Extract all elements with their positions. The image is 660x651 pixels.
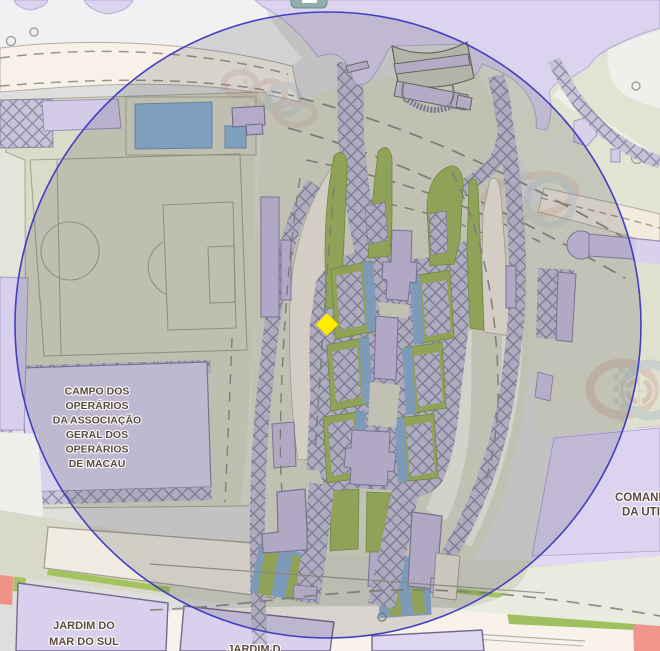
svg-text:JARDIM DO: JARDIM DO [53, 620, 115, 632]
svg-text:DE MACAU: DE MACAU [69, 458, 126, 470]
svg-text:MAR DO SUL: MAR DO SUL [49, 636, 119, 648]
svg-text:JARDIM D: JARDIM D [227, 644, 280, 651]
svg-text:OPERÁRIOS: OPERÁRIOS [65, 399, 128, 412]
svg-text:COMANDO: COMANDO [615, 492, 660, 504]
svg-text:CAMPO DOS: CAMPO DOS [65, 386, 130, 398]
svg-text:DA UTILIZ: DA UTILIZ [622, 507, 660, 519]
svg-text:DA ASSOCIAÇÃO: DA ASSOCIAÇÃO [53, 414, 141, 427]
svg-text:OPERÁRIOS: OPERÁRIOS [65, 443, 128, 456]
svg-text:GERAL DOS: GERAL DOS [66, 429, 128, 441]
